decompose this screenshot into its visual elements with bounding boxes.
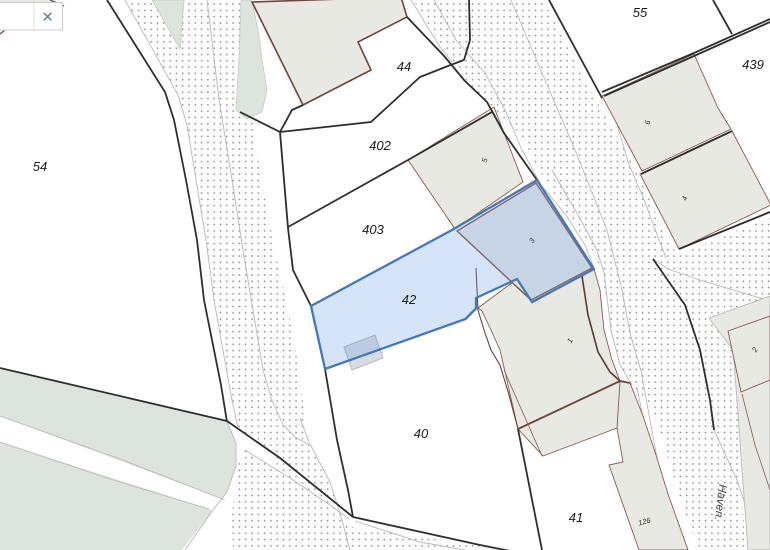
svg-text:41: 41 bbox=[569, 510, 583, 525]
svg-text:55: 55 bbox=[633, 5, 648, 20]
svg-text:40: 40 bbox=[414, 426, 429, 441]
svg-text:54: 54 bbox=[33, 159, 47, 174]
svg-text:42: 42 bbox=[402, 292, 417, 307]
svg-text:402: 402 bbox=[369, 138, 391, 153]
svg-text:44: 44 bbox=[397, 59, 411, 74]
svg-text:403: 403 bbox=[362, 222, 384, 237]
svg-text:439: 439 bbox=[742, 57, 764, 72]
